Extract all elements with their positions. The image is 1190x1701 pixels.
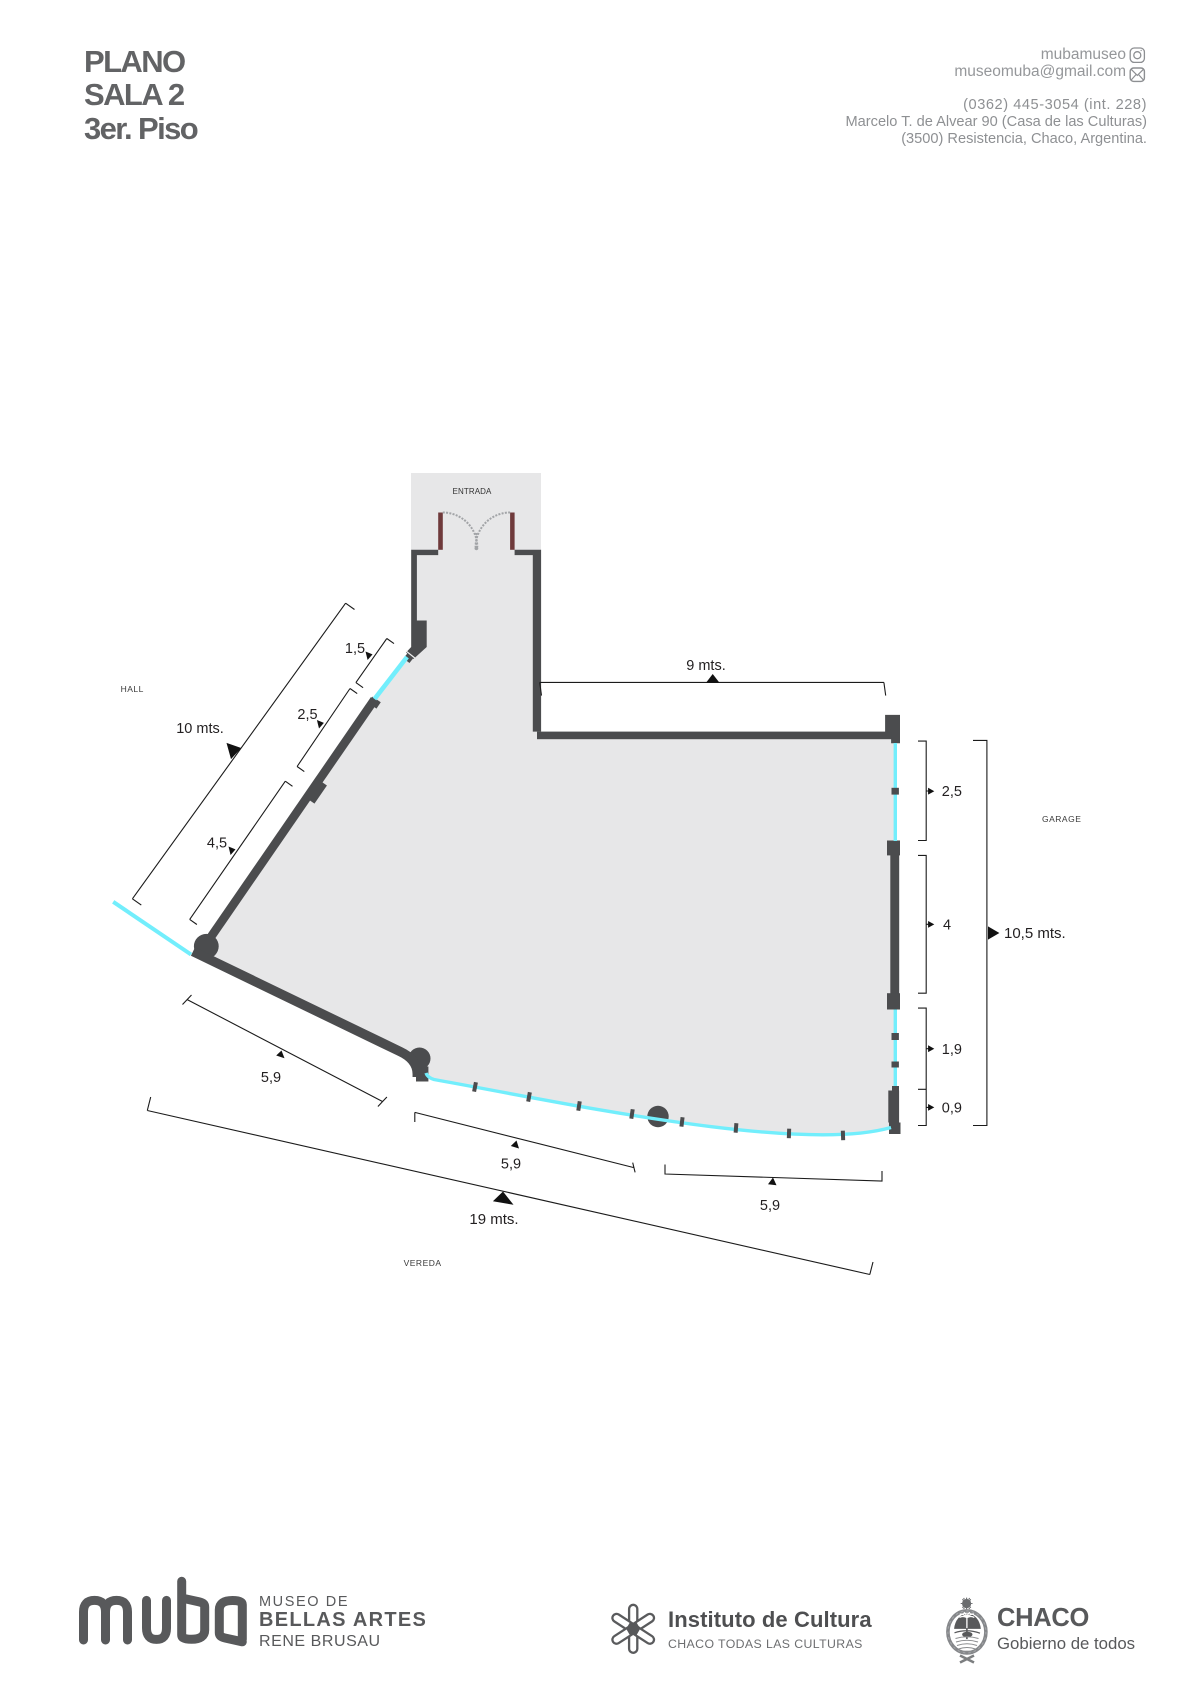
svg-text:4,5: 4,5: [207, 836, 227, 852]
svg-text:19 mts.: 19 mts.: [469, 1211, 518, 1228]
svg-text:10 mts.: 10 mts.: [176, 721, 224, 737]
svg-text:1,5: 1,5: [345, 641, 365, 657]
svg-text:10,5 mts.: 10,5 mts.: [1004, 925, 1066, 942]
svg-text:VEREDA: VEREDA: [404, 1258, 442, 1268]
svg-text:5,9: 5,9: [760, 1198, 780, 1214]
svg-text:2,5: 2,5: [297, 707, 317, 723]
svg-text:HALL: HALL: [121, 684, 144, 694]
svg-text:0,9: 0,9: [942, 1101, 962, 1117]
svg-text:5,9: 5,9: [501, 1157, 521, 1173]
svg-text:5,9: 5,9: [261, 1070, 281, 1086]
svg-text:2,5: 2,5: [942, 784, 962, 800]
svg-text:1,9: 1,9: [942, 1042, 962, 1058]
svg-text:ENTRADA: ENTRADA: [453, 487, 492, 496]
svg-text:GARAGE: GARAGE: [1042, 814, 1081, 824]
svg-text:9 mts.: 9 mts.: [686, 658, 725, 674]
svg-text:4: 4: [943, 918, 951, 934]
